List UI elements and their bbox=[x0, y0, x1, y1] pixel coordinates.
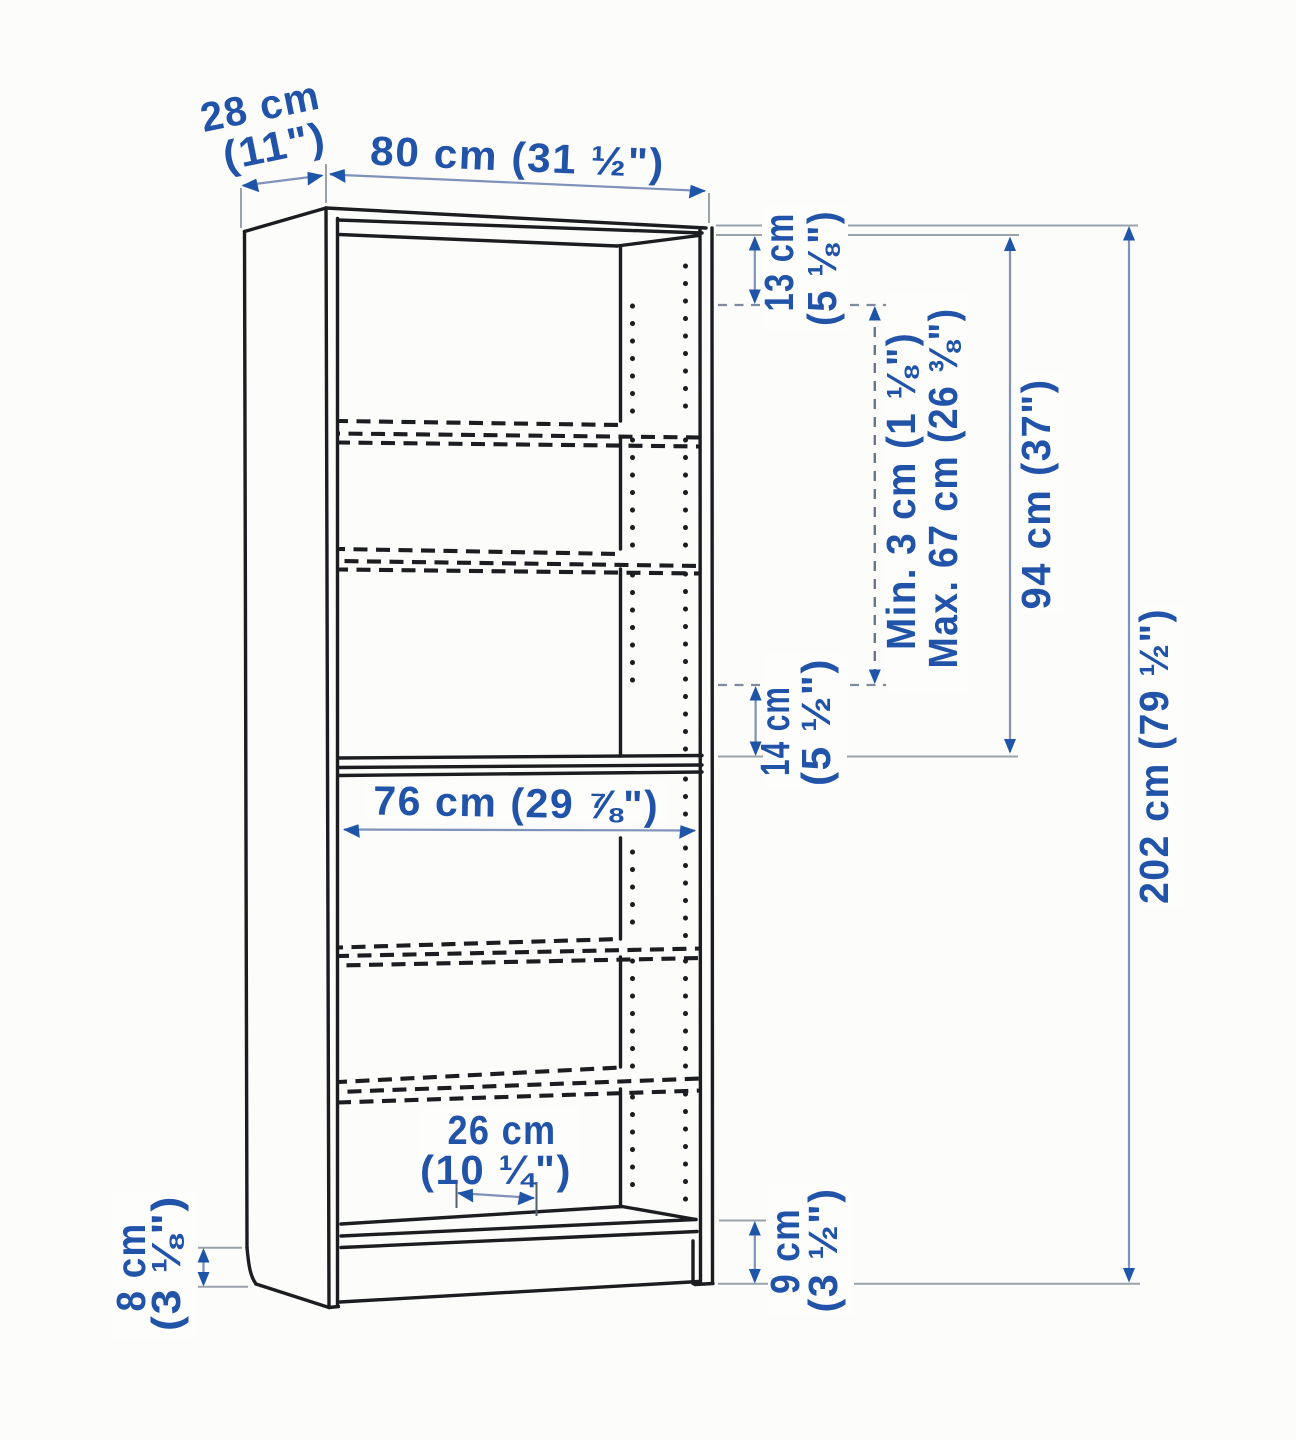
svg-text:202 cm (79 ½"): 202 cm (79 ½") bbox=[1131, 608, 1177, 904]
svg-text:(10 ¼"): (10 ¼") bbox=[420, 1147, 572, 1193]
svg-text:14 cm: 14 cm bbox=[752, 686, 798, 776]
svg-text:(3 ½"): (3 ½") bbox=[800, 1188, 846, 1313]
svg-text:76 cm (29 ⅞"): 76 cm (29 ⅞") bbox=[373, 778, 660, 829]
svg-text:(5 ⅛"): (5 ⅛") bbox=[799, 210, 845, 326]
svg-text:94 cm (37"): 94 cm (37") bbox=[1013, 379, 1059, 610]
svg-text:Max. 67 cm (26 ⅜"): Max. 67 cm (26 ⅜") bbox=[920, 308, 966, 669]
svg-text:13 cm: 13 cm bbox=[756, 213, 802, 312]
svg-text:Min. 3 cm (1 ⅛"): Min. 3 cm (1 ⅛") bbox=[878, 332, 924, 650]
svg-text:(5 ½"): (5 ½") bbox=[793, 658, 839, 786]
svg-text:(3 ⅛"): (3 ⅛") bbox=[143, 1195, 189, 1331]
